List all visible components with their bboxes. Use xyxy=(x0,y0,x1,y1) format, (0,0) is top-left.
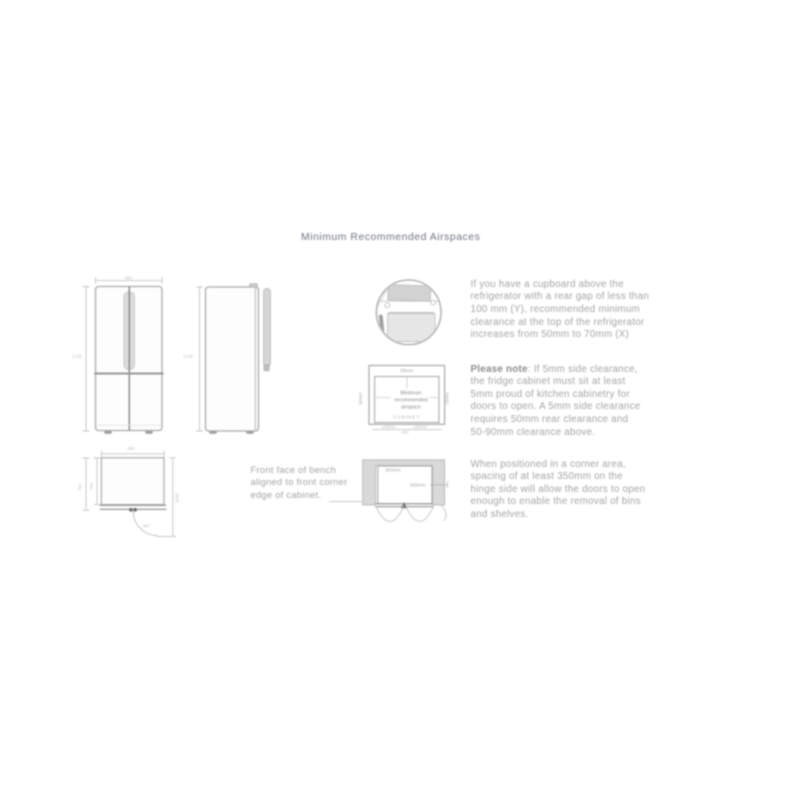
svg-text:890: 890 xyxy=(127,446,135,451)
svg-text:1725: 1725 xyxy=(183,354,193,359)
svg-text:750: 750 xyxy=(89,482,94,490)
svg-text:890: 890 xyxy=(125,276,133,281)
svg-text:50mm: 50mm xyxy=(358,392,363,405)
svg-text:≥25mm: ≥25mm xyxy=(382,424,396,429)
svg-text:350mm: 350mm xyxy=(385,468,401,474)
svg-text:CABINET: CABINET xyxy=(393,415,420,421)
svg-text:1735: 1735 xyxy=(72,354,82,359)
svg-text:1030: 1030 xyxy=(175,493,180,503)
svg-text:Minimum: Minimum xyxy=(400,390,421,396)
svg-text:≥25mm: ≥25mm xyxy=(413,424,427,429)
svg-text:782: 782 xyxy=(78,483,83,491)
svg-text:recommended: recommended xyxy=(394,397,427,403)
svg-text:25mm: 25mm xyxy=(444,392,449,405)
svg-text:300mm: 300mm xyxy=(410,482,426,488)
svg-text:airspace: airspace xyxy=(401,404,421,410)
svg-text:50mm: 50mm xyxy=(401,368,414,373)
svg-text:890: 890 xyxy=(402,429,409,434)
svg-text:90°: 90° xyxy=(143,524,150,530)
